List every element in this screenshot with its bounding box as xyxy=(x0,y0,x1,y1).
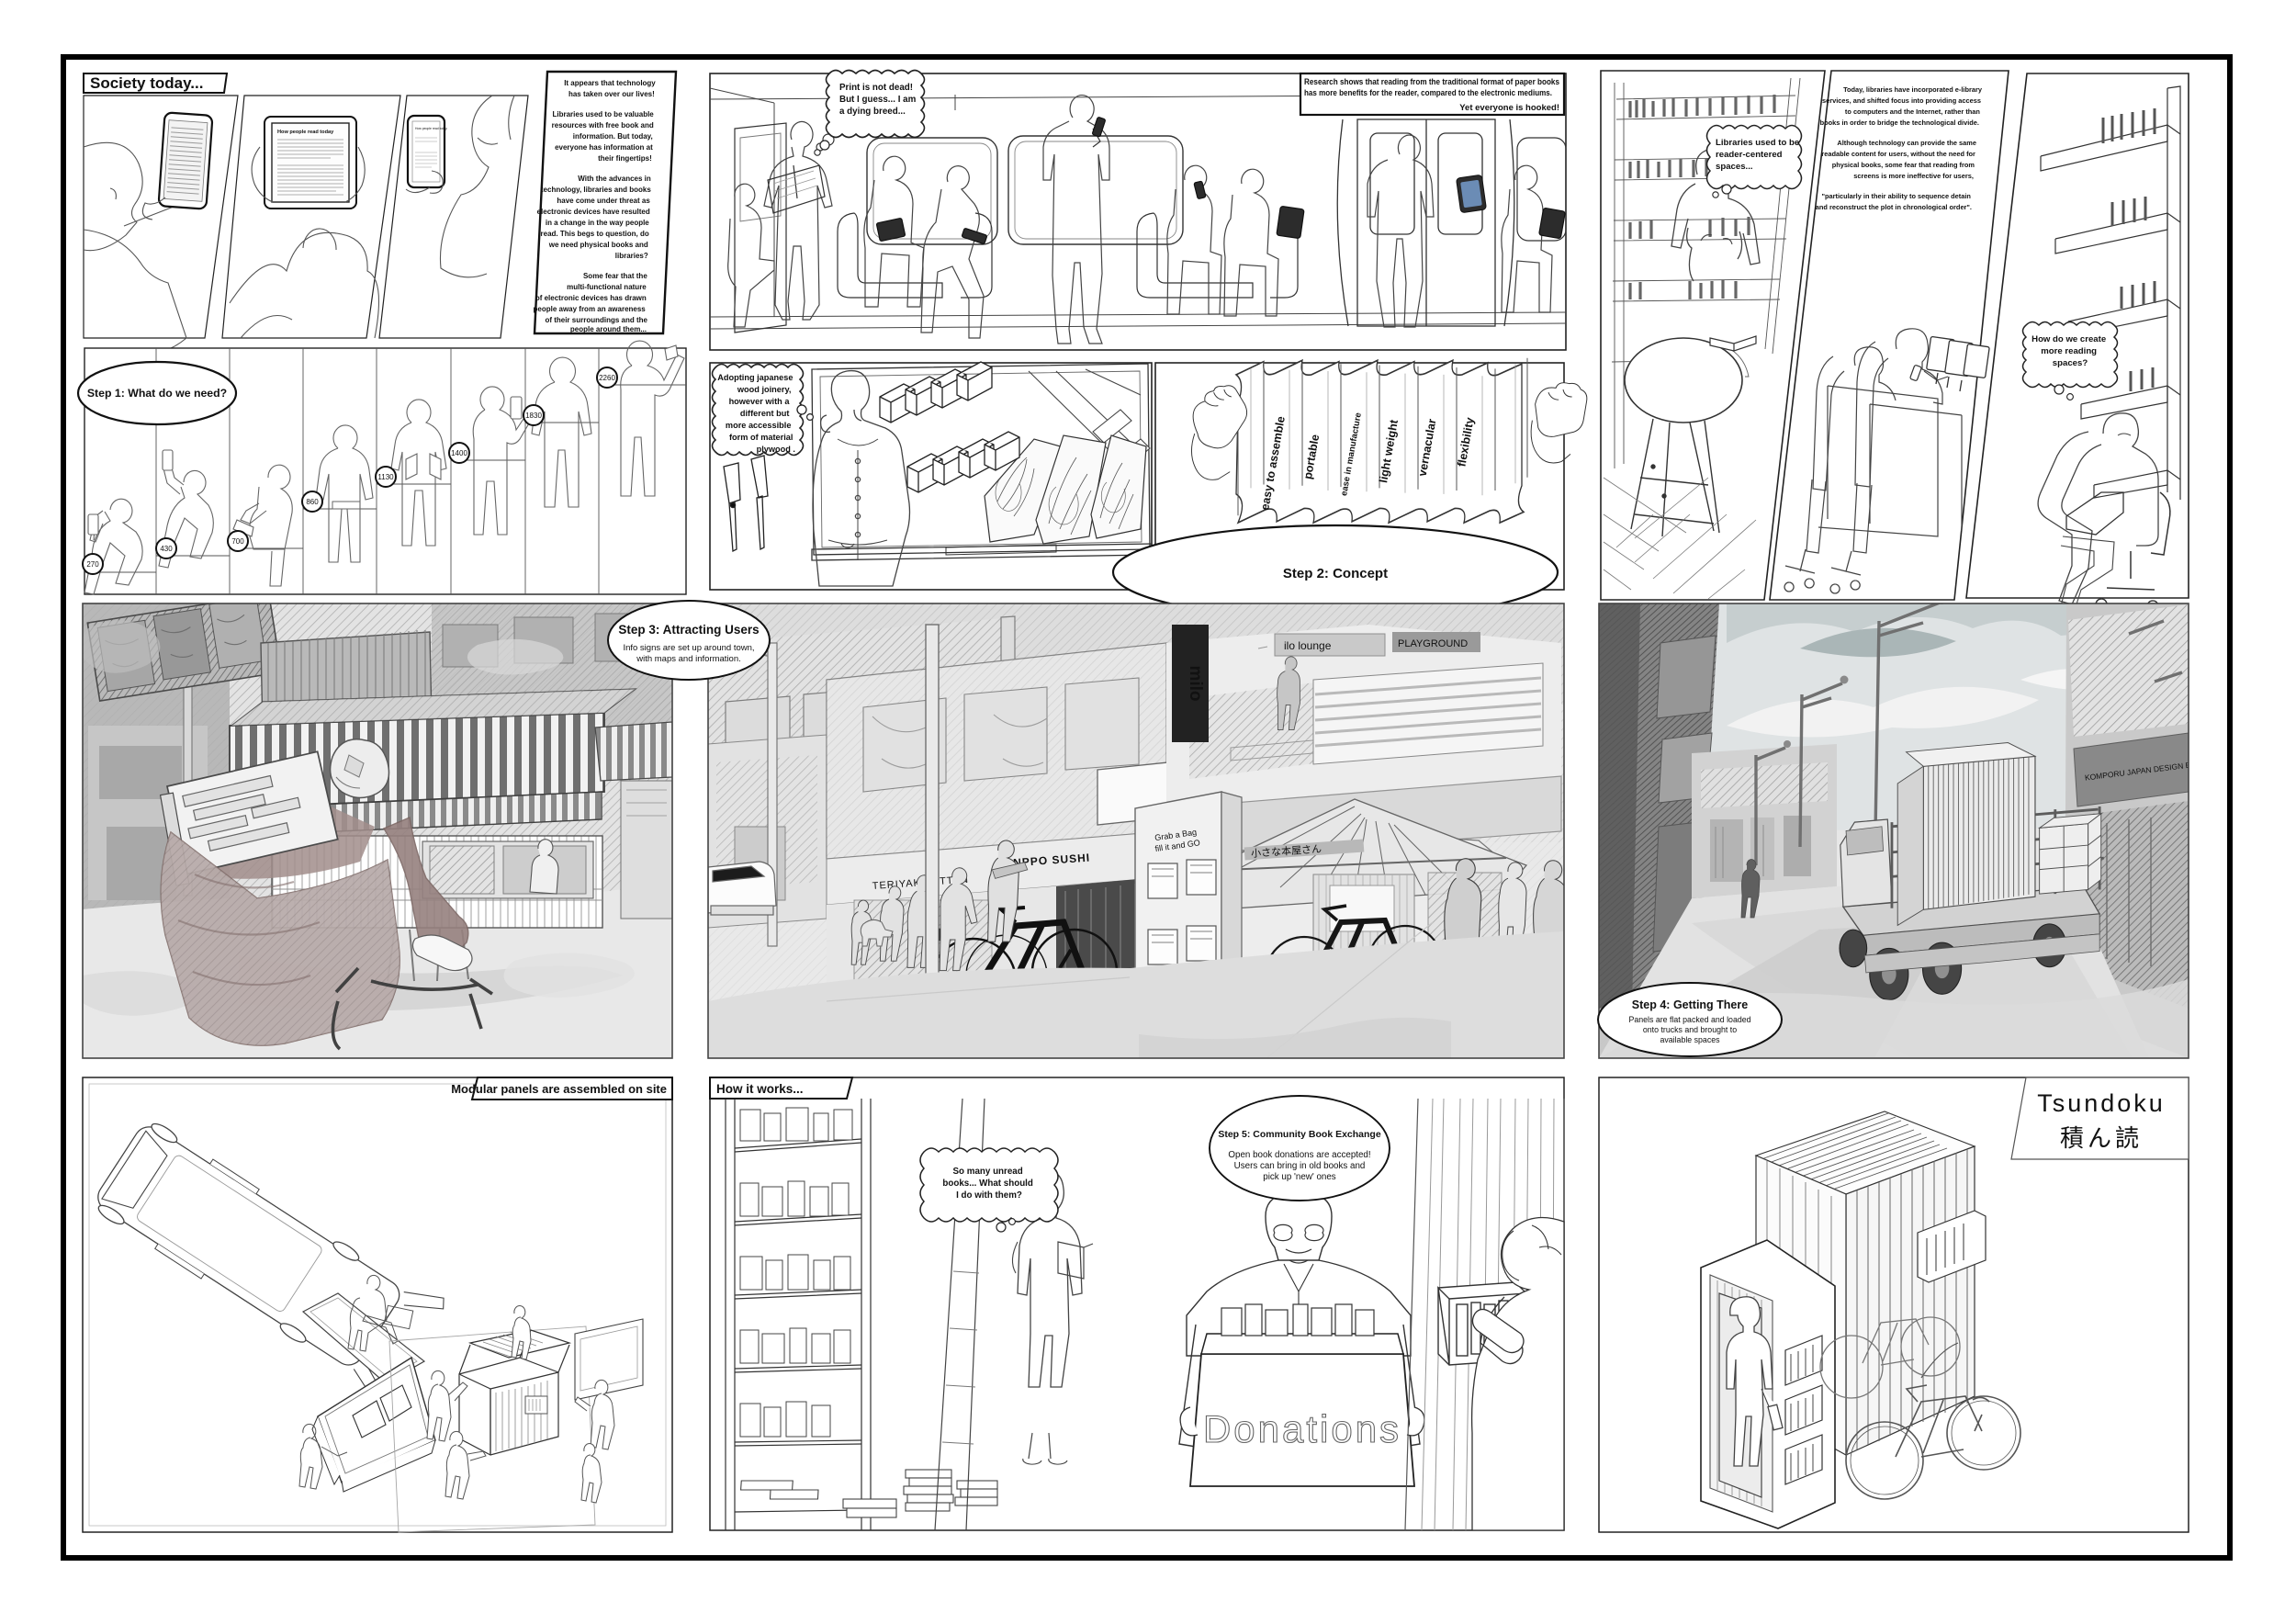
svg-text:Panels are flat packed and loa: Panels are flat packed and loaded xyxy=(1628,1015,1750,1024)
svg-text:1400: 1400 xyxy=(451,449,467,457)
svg-text:270: 270 xyxy=(86,560,99,569)
svg-text:Modular panels are assembled o: Modular panels are assembled on site xyxy=(451,1082,667,1096)
svg-text:Yet everyone is hooked!: Yet everyone is hooked! xyxy=(1459,103,1559,113)
svg-text:pick up 'new' ones: pick up 'new' ones xyxy=(1263,1172,1336,1182)
svg-text:Info signs are set up around t: Info signs are set up around town, xyxy=(623,643,754,653)
svg-text:Users can bring in old books a: Users can bring in old books and xyxy=(1234,1161,1366,1171)
svg-text:a dying breed...: a dying breed... xyxy=(839,107,906,117)
svg-text:with maps and information.: with maps and information. xyxy=(636,654,741,664)
svg-text:Print is not dead!: Print is not dead! xyxy=(839,83,913,93)
svg-text:PLAYGROUND: PLAYGROUND xyxy=(1398,638,1468,649)
svg-text:available spaces: available spaces xyxy=(1660,1035,1720,1044)
svg-text:Step 4: Getting There: Step 4: Getting There xyxy=(1632,998,1748,1011)
svg-text:How people read today: How people read today xyxy=(277,130,334,135)
svg-text:Society today...: Society today... xyxy=(90,74,203,92)
svg-text:Donations: Donations xyxy=(1203,1407,1401,1450)
svg-text:has more benefits for the read: has more benefits for the reader, compar… xyxy=(1304,88,1552,98)
svg-text:ilo lounge: ilo lounge xyxy=(1284,639,1332,652)
svg-text:430: 430 xyxy=(160,545,173,553)
svg-text:Open book donations are accept: Open book donations are accepted! xyxy=(1228,1150,1370,1160)
svg-text:Step 1: What do we need?: Step 1: What do we need? xyxy=(87,387,227,400)
svg-text:How it works...: How it works... xyxy=(716,1082,804,1096)
svg-text:Step 3: Attracting Users: Step 3: Attracting Users xyxy=(618,623,759,637)
svg-text:1130: 1130 xyxy=(377,473,394,481)
svg-text:milo: milo xyxy=(1186,665,1205,701)
svg-text:people around them...: people around them... xyxy=(570,325,647,333)
svg-text:So many unread books... What s: So many unread books... What should I do… xyxy=(942,1167,1035,1201)
svg-text:1830: 1830 xyxy=(525,412,542,420)
svg-text:Step 2: Concept: Step 2: Concept xyxy=(1283,566,1388,581)
svg-text:onto trucks and brought to: onto trucks and brought to xyxy=(1643,1025,1737,1034)
svg-text:2260: 2260 xyxy=(599,374,615,382)
svg-text:700: 700 xyxy=(231,537,244,546)
svg-text:860: 860 xyxy=(306,498,319,506)
svg-text:Research shows that reading fr: Research shows that reading from the tra… xyxy=(1304,77,1559,87)
svg-text:How people read today: How people read today xyxy=(415,127,447,130)
svg-text:積ん読: 積ん読 xyxy=(2060,1124,2143,1152)
svg-text:But I guess... I am: But I guess... I am xyxy=(839,95,917,105)
svg-text:Step 5: Community Book Exchang: Step 5: Community Book Exchange xyxy=(1218,1129,1381,1140)
svg-text:Tsundoku: Tsundoku xyxy=(2037,1089,2166,1117)
